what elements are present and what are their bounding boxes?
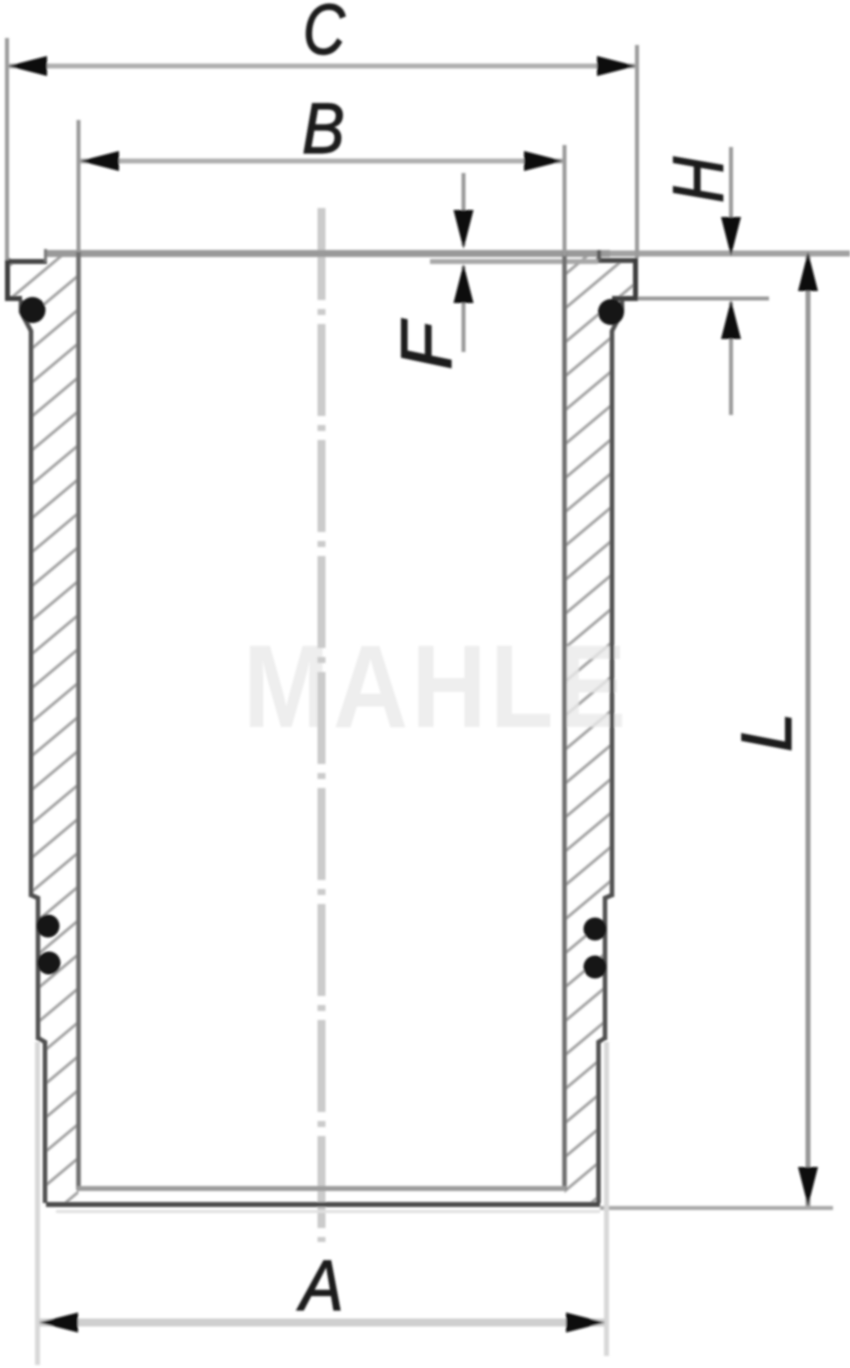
svg-text:A: A: [296, 1247, 343, 1326]
svg-text:B: B: [302, 90, 345, 169]
svg-text:F: F: [386, 318, 466, 370]
svg-text:MAHLE: MAHLE: [243, 620, 630, 753]
svg-text:L: L: [728, 713, 807, 753]
svg-text:H: H: [660, 157, 739, 203]
svg-text:C: C: [303, 0, 346, 69]
